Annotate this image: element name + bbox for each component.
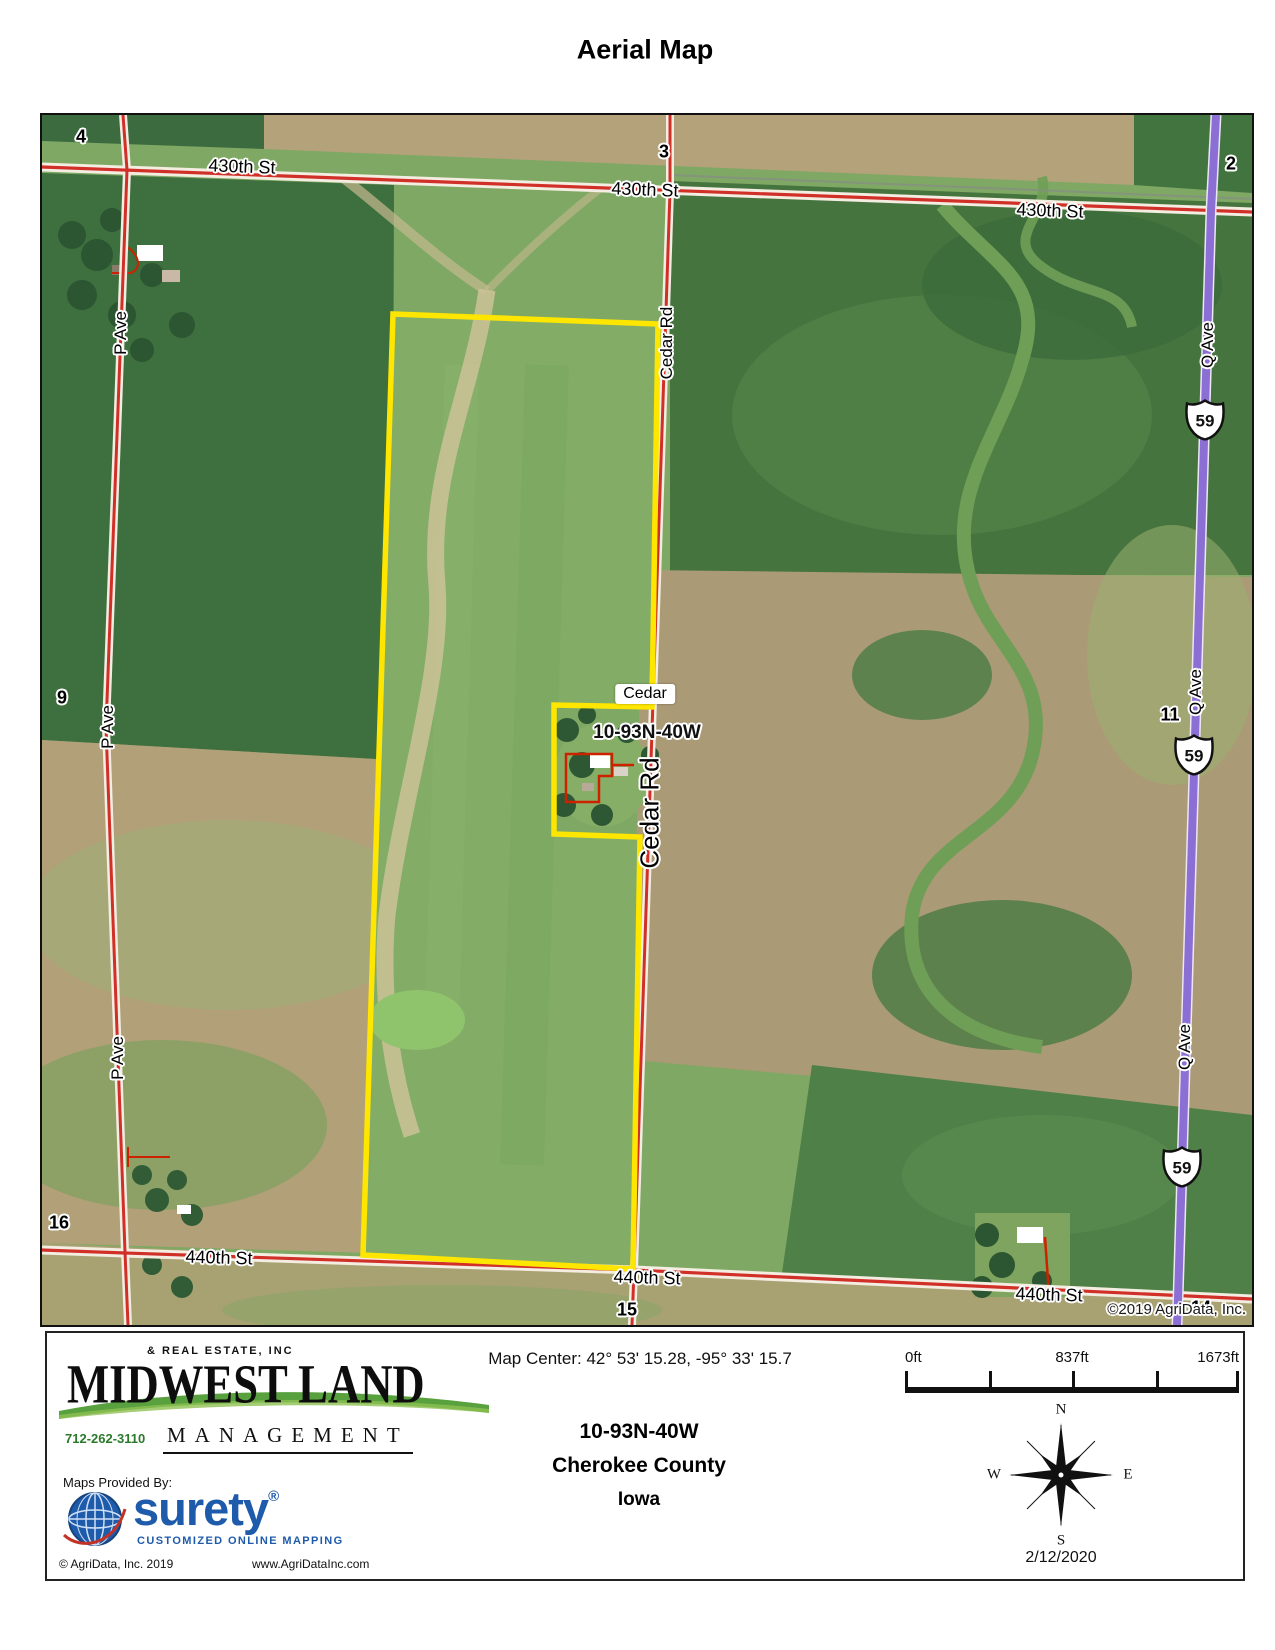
cedar-place-label: Cedar — [615, 684, 675, 704]
map-center-coordinates: Map Center: 42° 53' 15.28, -95° 33' 15.7 — [488, 1349, 792, 1369]
us59-shield-1: 59 — [1185, 399, 1225, 446]
section-number-11: 11 — [1160, 705, 1179, 726]
registered-mark: ® — [268, 1488, 278, 1505]
footer-info-box: & REAL ESTATE, INC MIDWEST LAND 712-262-… — [45, 1331, 1245, 1581]
logo-management: MANAGEMENT — [163, 1423, 413, 1454]
section-number-4: 4 — [76, 127, 86, 148]
township-overlay-label: 10-93N-40W — [593, 722, 701, 744]
section-number-2: 2 — [1226, 154, 1236, 175]
svg-text:59: 59 — [1185, 747, 1204, 766]
map-date: 2/12/2020 — [1025, 1549, 1096, 1567]
section-number-3: 3 — [659, 142, 669, 163]
agridata-copyright: © AgriData, Inc. 2019 — [59, 1557, 173, 1571]
surety-globe-icon — [61, 1489, 131, 1555]
section-number-15: 15 — [617, 1300, 637, 1321]
road-label-440th-2: 440th St — [613, 1267, 681, 1290]
road-label-q-ave-1: Q Ave — [1198, 322, 1218, 368]
road-label-430th-2: 430th St — [611, 178, 679, 201]
aerial-map: 430th St 430th St 430th St 440th St 440t… — [40, 113, 1254, 1327]
road-label-q-ave-3: Q Ave — [1175, 1024, 1195, 1070]
scale-label-837ft: 837ft — [1055, 1349, 1088, 1366]
section-number-16: 16 — [49, 1213, 69, 1234]
svg-text:59: 59 — [1196, 412, 1215, 431]
compass-rose — [1001, 1415, 1121, 1535]
section-number-9: 9 — [57, 688, 67, 709]
scale-label-0ft: 0ft — [905, 1349, 922, 1366]
road-label-p-ave-1: P Ave — [111, 311, 131, 355]
midwest-land-logo: & REAL ESTATE, INC MIDWEST LAND 712-262-… — [55, 1339, 495, 1459]
road-label-440th-3: 440th St — [1015, 1284, 1083, 1307]
logo-name: MIDWEST LAND — [67, 1353, 425, 1417]
road-label-430th-3: 430th St — [1016, 199, 1084, 222]
surety-logo-text: surety® — [133, 1481, 278, 1536]
aerial-imagery — [42, 115, 1252, 1325]
map-copyright-overlay: ©2019 AgriData, Inc. — [1107, 1301, 1246, 1318]
road-label-q-ave-2: Q Ave — [1186, 669, 1206, 715]
page-title: Aerial Map — [577, 35, 714, 66]
compass-south-label: S — [1057, 1533, 1065, 1550]
road-label-p-ave-2: P Ave — [98, 705, 118, 749]
location-county: Cherokee County — [552, 1454, 726, 1478]
scale-bar — [905, 1371, 1239, 1393]
page: Aerial Map — [0, 0, 1275, 1650]
compass-east-label: E — [1123, 1467, 1132, 1484]
surety-tagline: CUSTOMIZED ONLINE MAPPING — [137, 1535, 344, 1547]
location-state: Iowa — [618, 1489, 660, 1511]
svg-text:59: 59 — [1173, 1159, 1192, 1178]
road-label-cedar-rd-2: Cedar Rd — [635, 757, 666, 868]
us59-shield-2: 59 — [1174, 734, 1214, 781]
location-township: 10-93N-40W — [579, 1420, 698, 1444]
agridata-website: www.AgriDataInc.com — [252, 1557, 369, 1571]
compass-north-label: N — [1056, 1402, 1067, 1419]
compass-west-label: W — [987, 1467, 1001, 1484]
road-label-cedar-rd-1: Cedar Rd — [657, 307, 677, 380]
us59-shield-3: 59 — [1162, 1146, 1202, 1193]
scale-label-1673ft: 1673ft — [1197, 1349, 1239, 1366]
road-label-440th-1: 440th St — [185, 1247, 253, 1270]
logo-phone: 712-262-3110 — [65, 1431, 145, 1446]
road-label-p-ave-3: P Ave — [108, 1036, 128, 1080]
road-label-430th-1: 430th St — [208, 155, 276, 178]
